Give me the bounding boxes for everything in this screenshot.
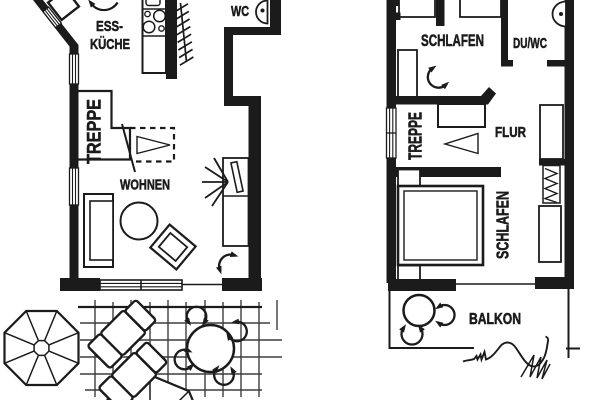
- svg-text:WOHNEN: WOHNEN: [120, 177, 170, 194]
- svg-text:FLUR: FLUR: [495, 124, 526, 141]
- svg-text:DU/WC: DU/WC: [513, 35, 547, 52]
- svg-text:SCHLAFEN: SCHLAFEN: [493, 191, 513, 259]
- svg-text:BALKON: BALKON: [469, 311, 521, 328]
- svg-text:WC: WC: [231, 3, 249, 20]
- svg-text:SCHLAFEN: SCHLAFEN: [421, 32, 484, 50]
- svg-text:ESS-: ESS-: [96, 18, 123, 35]
- svg-text:TREPPE: TREPPE: [406, 112, 426, 160]
- svg-text:KÜCHE: KÜCHE: [90, 36, 130, 53]
- svg-text:TREPPE: TREPPE: [84, 99, 106, 164]
